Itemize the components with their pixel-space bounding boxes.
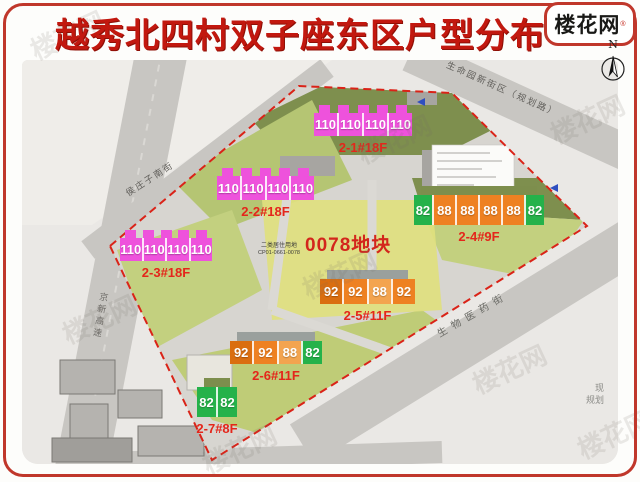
roof-tab — [319, 105, 330, 113]
building-2-4: 8288888888822-4#9F — [414, 186, 544, 225]
building-label: 2-5#11F — [344, 308, 392, 323]
unit-cell-82: 82 — [301, 341, 322, 364]
building-2-1: 1101101101102-1#18F — [314, 105, 412, 136]
unit-cell-82: 82 — [197, 387, 216, 417]
logo-registered-mark: ® — [620, 21, 625, 28]
compass-needle-icon — [596, 50, 630, 84]
roof-tab — [196, 230, 207, 238]
unit-cell-110: 110 — [289, 176, 314, 200]
roof-tab — [125, 230, 136, 238]
page-title: 越秀北四村双子座东区户型分布 — [40, 8, 560, 57]
land-use-note: 二类居住用地 CP01-0661-0078 — [250, 243, 308, 257]
roof-strip — [327, 270, 408, 279]
unit-cell-110: 110 — [387, 113, 412, 136]
unit-cell-110: 110 — [120, 238, 142, 261]
roof-tabs — [120, 230, 212, 238]
road-label-northwest: 侯庄子南街 — [123, 158, 176, 199]
land-use-label: 二类居住用地 — [250, 243, 308, 250]
roof-tab — [377, 105, 388, 113]
land-code-label: CP01-0661-0078 — [250, 250, 308, 257]
corner-note-line2: 规划 — [562, 394, 604, 406]
roof-tab — [358, 105, 369, 113]
unit-cell-110: 110 — [217, 176, 240, 200]
roof-tab — [161, 230, 172, 238]
roof-tab — [279, 168, 290, 176]
unit-row: 110110110110 — [314, 113, 412, 136]
building-label: 2-1#18F — [339, 140, 387, 155]
roof-strip — [204, 378, 230, 387]
north-compass-icon: N — [596, 40, 630, 86]
roof-tab — [260, 168, 271, 176]
road-label-west: 京新高速 — [90, 291, 111, 341]
building-label: 2-7#8F — [196, 421, 237, 436]
building-2-7: 82822-7#8F — [197, 378, 237, 417]
unit-cell-88: 88 — [478, 195, 501, 225]
road-label-southeast: 生物医药街 — [434, 287, 511, 340]
roof-tab — [338, 105, 349, 113]
building-label: 2-2#18F — [241, 204, 289, 219]
unit-row: 110110110110 — [120, 238, 212, 261]
roof-tab — [222, 168, 233, 176]
unit-cell-88: 88 — [367, 279, 391, 304]
building-2-2: 1101101101102-2#18F — [217, 168, 314, 200]
unit-cell-110: 110 — [189, 238, 213, 261]
unit-cell-82: 82 — [414, 195, 432, 225]
roof-tab — [241, 168, 252, 176]
unit-cell-110: 110 — [142, 238, 166, 261]
unit-cell-110: 110 — [314, 113, 337, 136]
unit-cell-92: 92 — [252, 341, 276, 364]
unit-cell-92: 92 — [342, 279, 366, 304]
unit-cell-88: 88 — [277, 341, 301, 364]
unit-cell-82: 82 — [524, 195, 544, 225]
unit-row: 828888888882 — [414, 195, 544, 225]
unit-cell-92: 92 — [391, 279, 415, 304]
roof-tab — [298, 168, 309, 176]
building-2-3: 1101101101102-3#18F — [120, 230, 212, 261]
unit-cell-88: 88 — [455, 195, 478, 225]
unit-row: 8282 — [197, 387, 237, 417]
roof-strip — [237, 332, 315, 341]
unit-cell-88: 88 — [432, 195, 455, 225]
compass-n-label: N — [596, 40, 630, 50]
building-label: 2-3#18F — [142, 265, 190, 280]
building-label: 2-6#11F — [252, 368, 300, 383]
site-plan-map: 0078地块 二类居住用地 CP01-0661-0078 侯庄子南街 生命园新街… — [22, 60, 618, 464]
road-label-northeast: 生命园新街区（规划路） — [445, 60, 561, 119]
roof-strip — [421, 186, 537, 195]
corner-note-line1: 现 — [562, 382, 604, 394]
roof-tabs — [314, 105, 412, 113]
unit-row: 110110110110 — [217, 176, 314, 200]
unit-cell-110: 110 — [362, 113, 387, 136]
unit-cell-88: 88 — [501, 195, 524, 225]
building-2-6: 929288822-6#11F — [230, 332, 322, 364]
parcel-label: 0078地块 — [305, 230, 391, 257]
unit-cell-110: 110 — [337, 113, 362, 136]
roof-tab — [143, 230, 154, 238]
unit-row: 92928882 — [230, 341, 322, 364]
logo-text: 楼花网 — [554, 9, 620, 39]
corner-note: 现 规划 — [562, 382, 604, 406]
unit-cell-110: 110 — [265, 176, 290, 200]
unit-cell-82: 82 — [216, 387, 237, 417]
roof-tabs — [217, 168, 314, 176]
unit-cell-92: 92 — [320, 279, 342, 304]
roof-tab — [178, 230, 189, 238]
unit-cell-92: 92 — [230, 341, 252, 364]
building-2-5: 929288922-5#11F — [320, 270, 415, 304]
unit-cell-110: 110 — [240, 176, 265, 200]
unit-cell-110: 110 — [165, 238, 189, 261]
building-label: 2-4#9F — [458, 229, 499, 244]
unit-row: 92928892 — [320, 279, 415, 304]
roof-tab — [396, 105, 407, 113]
